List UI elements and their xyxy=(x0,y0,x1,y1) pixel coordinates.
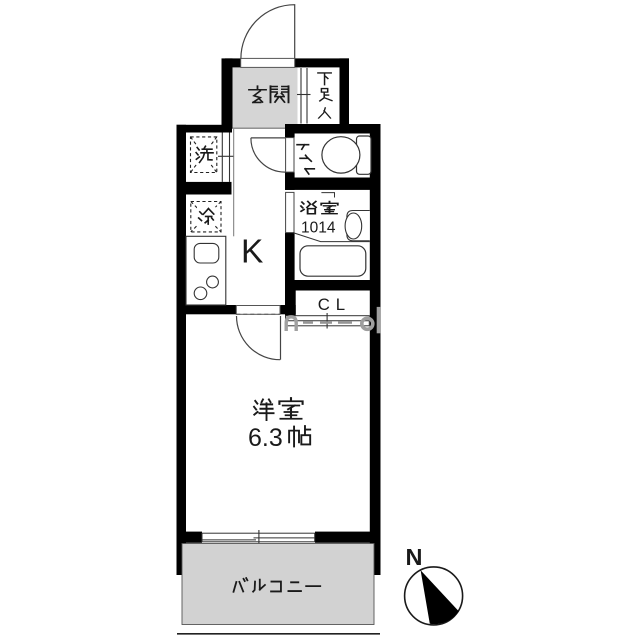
svg-text:N: N xyxy=(406,544,423,570)
svg-text:L: L xyxy=(336,295,345,314)
svg-text:1014: 1014 xyxy=(301,220,336,237)
svg-text:K: K xyxy=(241,233,263,270)
svg-text:C: C xyxy=(318,295,330,314)
svg-text:6.3: 6.3 xyxy=(248,424,283,452)
